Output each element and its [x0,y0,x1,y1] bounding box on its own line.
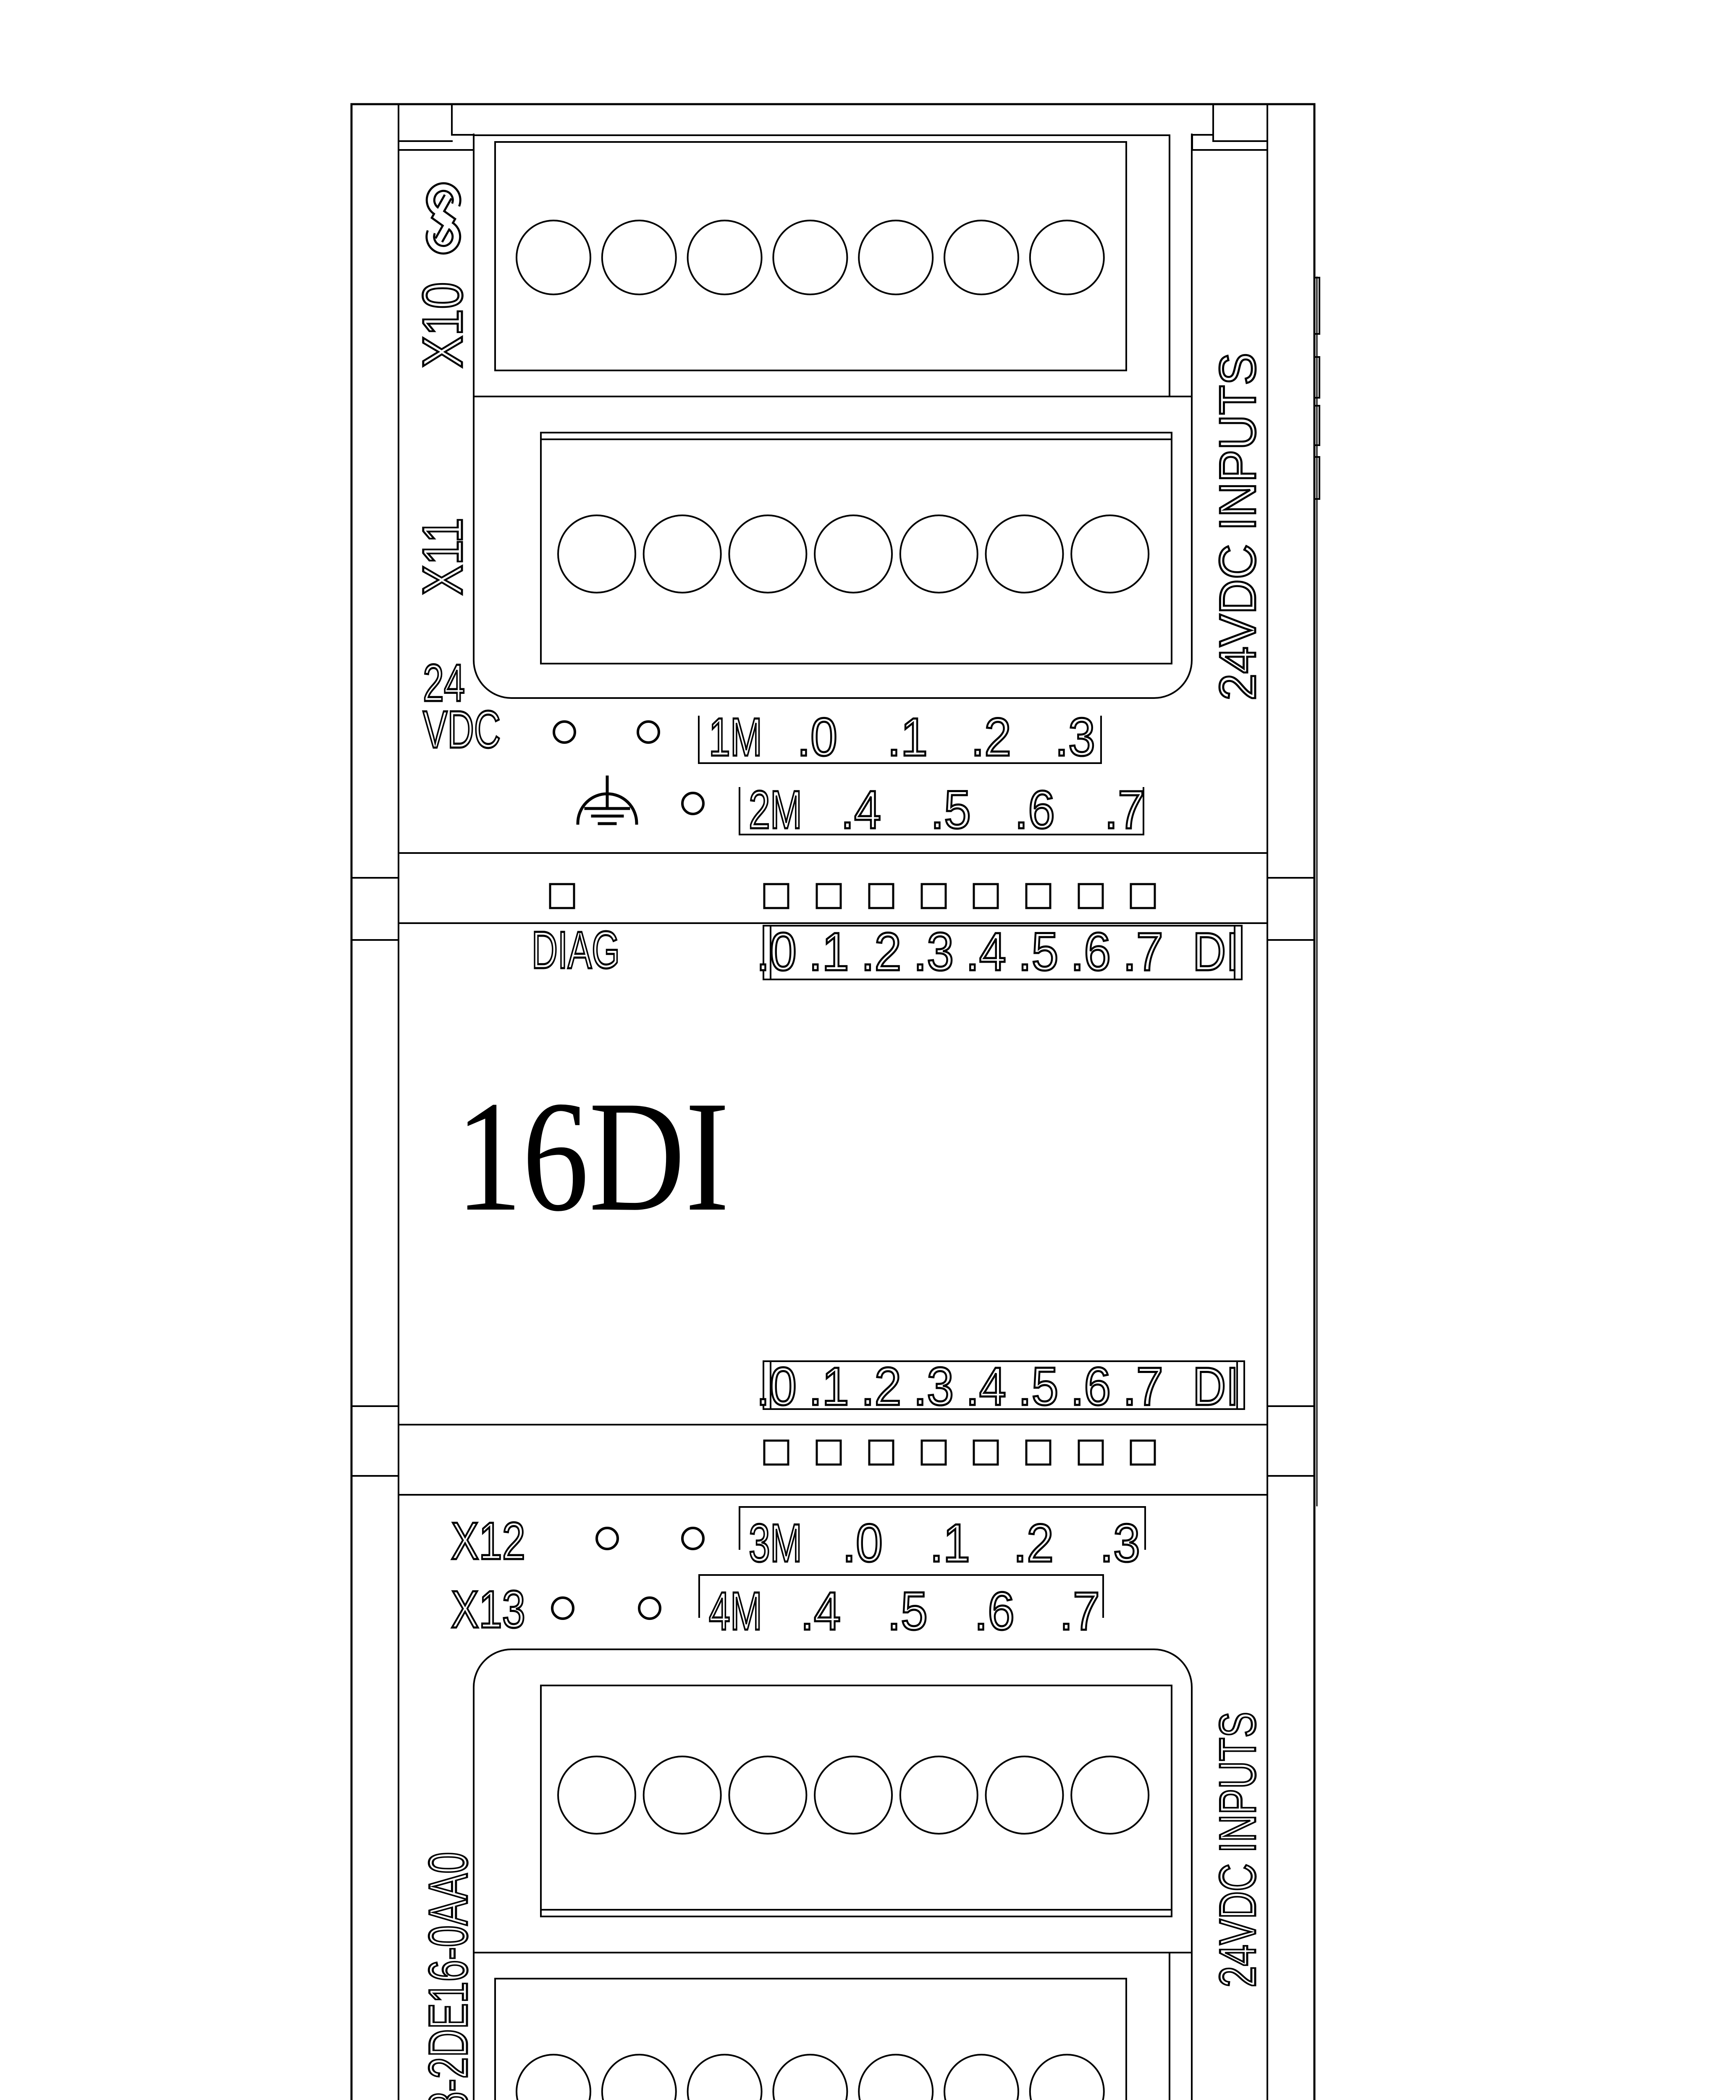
svg-text:X12: X12 [451,1512,525,1570]
svg-text:.7: .7 [1123,1357,1163,1417]
svg-text:.2: .2 [861,922,901,982]
svg-text:.3: .3 [1055,707,1095,767]
svg-text:.3: .3 [1100,1513,1140,1573]
svg-text:.2: .2 [1013,1513,1054,1573]
svg-text:.1: .1 [887,707,928,767]
svg-text:.4: .4 [966,922,1006,982]
svg-text:.4: .4 [966,1357,1006,1417]
svg-text:.3: .3 [913,1357,954,1417]
svg-text:3M: 3M [749,1513,802,1573]
svg-text:VDC: VDC [423,701,501,759]
svg-text:DIAG: DIAG [532,921,620,979]
svg-text:1M: 1M [709,707,762,767]
svg-text:.1: .1 [930,1513,970,1573]
svg-text:.6: .6 [974,1581,1015,1641]
svg-text:288-2DE16-0AA0: 288-2DE16-0AA0 [417,1852,479,2100]
svg-text:.5: .5 [887,1581,928,1641]
svg-text:.6: .6 [1070,922,1111,982]
svg-text:.2: .2 [861,1357,901,1417]
svg-text:X13: X13 [451,1580,525,1639]
svg-text:.0: .0 [842,1513,883,1573]
svg-text:.3: .3 [913,922,954,982]
svg-text:.0: .0 [797,707,837,767]
svg-text:.4: .4 [841,780,881,840]
svg-text:.1: .1 [809,922,849,982]
svg-text:.2: .2 [971,707,1011,767]
svg-text:DI: DI [1193,922,1239,982]
svg-text:.6: .6 [1070,1357,1111,1417]
svg-text:.5: .5 [1018,1357,1059,1417]
svg-text:.5: .5 [1018,922,1059,982]
svg-text:.6: .6 [1015,780,1055,840]
svg-text:DI: DI [1193,1357,1239,1417]
svg-text:.7: .7 [1059,1581,1100,1641]
svg-text:24VDC INPUTS: 24VDC INPUTS [1209,353,1266,701]
svg-text:.7: .7 [1123,922,1163,982]
svg-text:.0: .0 [756,922,797,982]
svg-text:.5: .5 [931,780,971,840]
svg-text:.4: .4 [800,1581,841,1641]
svg-text:.7: .7 [1104,780,1145,840]
svg-text:24VDC INPUTS: 24VDC INPUTS [1209,1712,1266,1987]
svg-text:4M: 4M [709,1581,762,1641]
svg-text:2M: 2M [749,780,802,840]
svg-text:X11: X11 [412,518,474,596]
svg-text:X10: X10 [412,282,474,368]
svg-text:.0: .0 [756,1357,797,1417]
svg-text:16DI: 16DI [456,1068,729,1244]
svg-text:.1: .1 [809,1357,849,1417]
